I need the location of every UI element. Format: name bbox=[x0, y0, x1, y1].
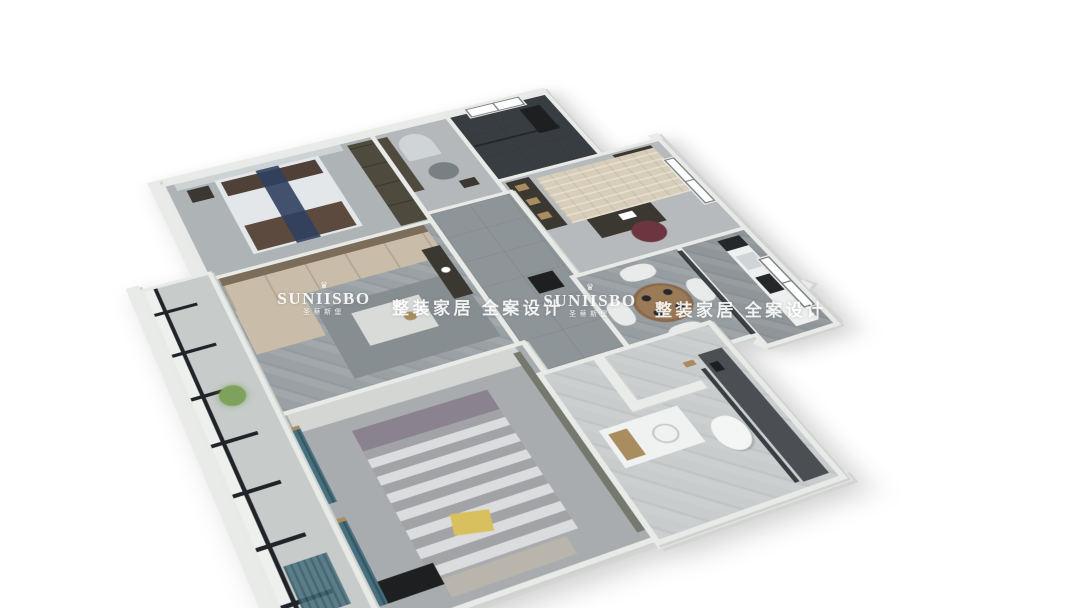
vase bbox=[440, 266, 452, 274]
watermark-tagline-1: 整装家居 全案设计 bbox=[392, 294, 564, 319]
place-setting-1 bbox=[640, 294, 653, 302]
window-mullion bbox=[782, 280, 791, 283]
dressing-chair bbox=[424, 159, 464, 182]
watermark-brand: SUNIISBO bbox=[542, 292, 638, 309]
bathroom1-vanity bbox=[599, 406, 706, 469]
vanity-sink bbox=[647, 421, 684, 446]
bookshelf-box-2 bbox=[526, 197, 542, 206]
bedroom2-nightstand bbox=[187, 186, 215, 203]
dressing-stool bbox=[459, 177, 480, 188]
apartment-3d-plan bbox=[100, 80, 986, 608]
vanity-wood-shelf bbox=[608, 428, 646, 460]
gold-towel-bar bbox=[682, 359, 696, 367]
watermark-brand-chinese: 圣蒂斯堡 bbox=[542, 311, 638, 318]
bookshelf-box-1 bbox=[514, 183, 529, 191]
floor-plan-render: ♛ SUNIISBO 圣蒂斯堡 整装家居 全案设计 ♛ SUNIISBO 圣蒂斯… bbox=[0, 0, 1080, 608]
balcony-plant bbox=[215, 382, 249, 409]
place-setting-2 bbox=[661, 288, 674, 296]
window-mullion bbox=[492, 103, 499, 110]
master-yellow-pillow bbox=[450, 509, 494, 536]
bathroom2-vanity bbox=[519, 105, 560, 133]
bathroom1-inner-wall-h bbox=[627, 380, 708, 412]
watermark-logo-1: ♛ SUNIISBO 圣蒂斯堡 bbox=[276, 281, 372, 316]
watermark-brand-chinese: 圣蒂斯堡 bbox=[276, 309, 372, 316]
watermark-logo-2: ♛ SUNIISBO 圣蒂斯堡 bbox=[542, 283, 638, 318]
dining-chair-north bbox=[616, 261, 660, 284]
master-media-console bbox=[377, 563, 444, 604]
window-mullion bbox=[686, 179, 694, 182]
bookshelf-box-3 bbox=[537, 211, 553, 220]
watermark-tagline-2: 整装家居 全案设计 bbox=[655, 296, 827, 321]
watermark-brand: SUNIISBO bbox=[276, 290, 372, 307]
